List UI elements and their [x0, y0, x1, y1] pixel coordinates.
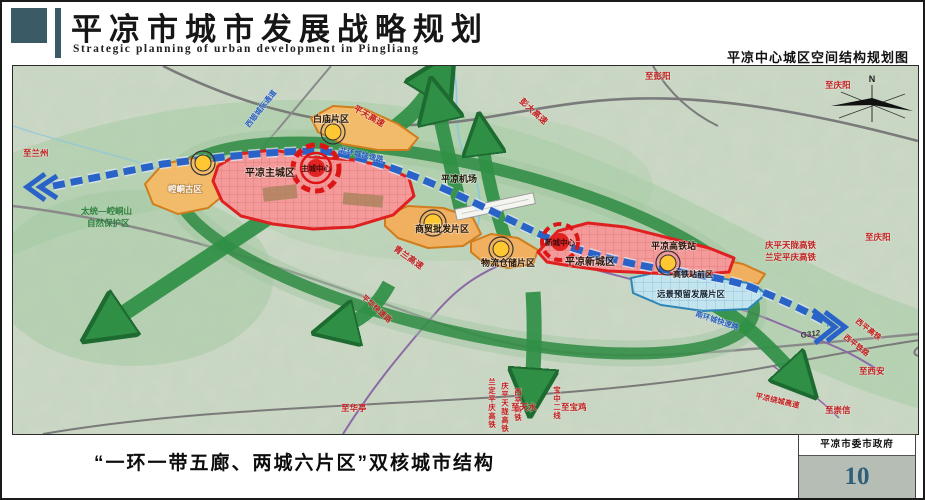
label-new-city: 平凉新城区: [565, 255, 615, 268]
header: 平凉市城市发展战略规划 Strategic planning of urban …: [2, 2, 923, 64]
label-to-xian: 至西安: [859, 366, 885, 376]
label-to-lanzhou: 至兰州: [23, 148, 49, 158]
label-baimiao-district: 白庙片区: [313, 113, 349, 124]
page-subtitle: Strategic planning of urban development …: [73, 43, 419, 55]
footer: “一环一带五廊、两城六片区”双核城市结构 平凉市委市政府 10: [2, 436, 923, 500]
svg-text:N: N: [869, 74, 876, 84]
header-accent-square: [11, 8, 47, 43]
label-logistics-district: 物流仓储片区: [481, 257, 535, 268]
label-to-baoji: 至宝鸡: [561, 402, 587, 412]
label-qptl-hsr: 庆平天陇高铁: [764, 240, 817, 250]
label-to-qingyang-right: 至庆阳: [865, 232, 891, 242]
label-kongtong-old-town: 崆峒古区: [168, 184, 203, 194]
label-nature-reserve-2: 自然保护区: [87, 218, 130, 228]
planning-map: N 至兰州 西银城际通道 白庙片区 平天高速 彭大高速 至彭阳 至庆阳 北环城快…: [13, 66, 918, 434]
label-hsr-front-district: 高铁站前区: [673, 269, 713, 279]
label-main-city: 平凉主城区: [245, 166, 295, 179]
label-new-city-center: 新城中心: [545, 237, 575, 247]
footer-page-box: 平凉市委市政府 10: [798, 434, 916, 498]
label-nature-reserve-1: 太统—崆峒山: [80, 206, 132, 216]
page: 平凉市城市发展战略规划 Strategic planning of urban …: [0, 0, 925, 500]
label-reserved-district: 远景预留发展片区: [657, 289, 726, 299]
corridor-tianshui: [532, 292, 534, 388]
page-number: 10: [799, 456, 915, 498]
label-to-pengyang: 至彭阳: [645, 71, 671, 81]
authority-label: 平凉市委市政府: [799, 435, 915, 456]
label-v-qptl: 庆平天陇高铁: [500, 381, 509, 434]
label-to-qingyang-top: 至庆阳: [825, 80, 851, 90]
label-to-huating: 至华亭: [341, 403, 367, 413]
label-v-ldpq: 兰定平庆高铁: [487, 377, 496, 430]
map-area: N 至兰州 西银城际通道 白庙片区 平天高速 彭大高速 至彭阳 至庆阳 北环城快…: [12, 65, 919, 435]
label-trade-district: 商贸批发片区: [415, 223, 469, 234]
label-airport: 平凉机场: [441, 173, 477, 184]
header-accent-bar: [55, 8, 61, 58]
footer-caption: “一环一带五廊、两城六片区”双核城市结构: [94, 448, 495, 475]
label-ldpq-hsr: 兰定平庆高铁: [765, 252, 817, 262]
label-main-city-center: 主城中心: [301, 163, 331, 173]
label-hsr-station: 平凉高铁站: [651, 240, 696, 251]
label-to-chongxin: 至崇信: [825, 405, 851, 415]
label-to-tianshui: 至天水: [511, 402, 537, 412]
map-caption: 平凉中心城区空间结构规划图: [727, 47, 909, 66]
